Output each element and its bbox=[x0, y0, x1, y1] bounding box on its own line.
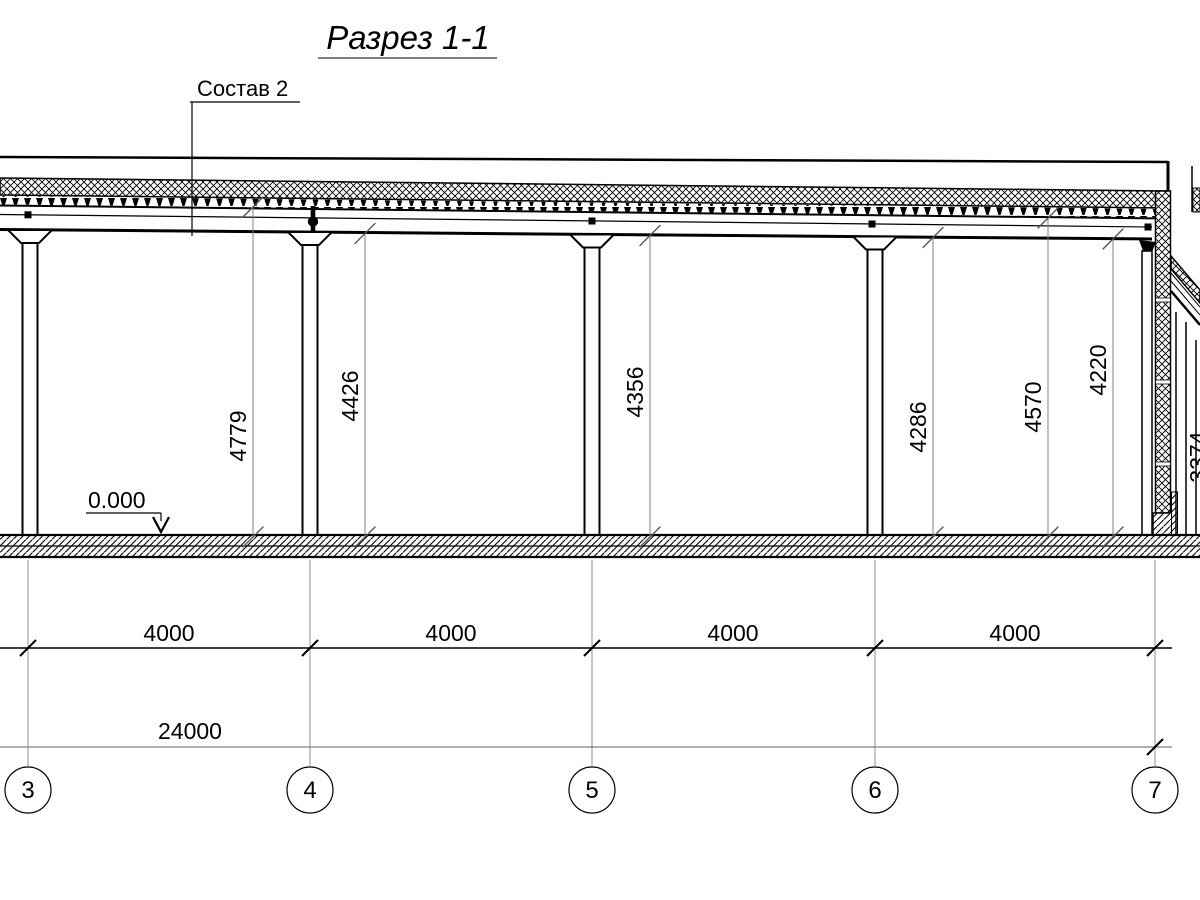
wall-joint bbox=[1156, 380, 1171, 384]
axis-bubble-7: 7 bbox=[1132, 767, 1178, 813]
beam-node bbox=[25, 211, 32, 218]
total-dimension-label: 24000 bbox=[158, 718, 222, 744]
wall-joint bbox=[1156, 298, 1171, 302]
wall-joint bbox=[1156, 462, 1171, 466]
callout-label: Состав 2 bbox=[197, 76, 288, 101]
bay-dimension-label: 4000 bbox=[707, 620, 758, 646]
axis-label: 6 bbox=[868, 777, 881, 804]
floor-slab bbox=[0, 535, 1200, 557]
axis-label: 3 bbox=[21, 777, 34, 804]
height-dimension-label: 4356 bbox=[622, 366, 648, 417]
axis-label: 5 bbox=[585, 777, 598, 804]
bay-dimension-label: 4000 bbox=[989, 620, 1040, 646]
height-dimension-label: 4220 bbox=[1085, 344, 1111, 395]
beam-node bbox=[1145, 224, 1152, 231]
annex-roof-fragment bbox=[1193, 188, 1200, 212]
section-drawing-sheet: 3374 0.000 Состав 2 4779 4426 bbox=[0, 0, 1200, 900]
wall-plinth bbox=[1153, 513, 1172, 537]
page-title: Разрез 1-1 bbox=[326, 19, 490, 56]
axis-label: 4 bbox=[303, 777, 316, 804]
axis-bubble-6: 6 bbox=[852, 767, 898, 813]
axis-label: 7 bbox=[1148, 777, 1161, 804]
beam-joint-node bbox=[308, 216, 318, 226]
floor-hatch-upper bbox=[0, 536, 1200, 546]
axis-bubble-3: 3 bbox=[5, 767, 51, 813]
axis-bubble-4: 4 bbox=[287, 767, 333, 813]
beam-node bbox=[869, 221, 876, 228]
height-dimension-label: 4286 bbox=[905, 401, 931, 452]
beam-node bbox=[589, 218, 596, 225]
bay-dimension-label: 4000 bbox=[425, 620, 476, 646]
axis-bubble-5: 5 bbox=[569, 767, 615, 813]
level-mark-value: 0.000 bbox=[88, 487, 146, 513]
floor-hatch-lower bbox=[0, 547, 1200, 557]
section-drawing: 3374 0.000 Состав 2 4779 4426 bbox=[0, 0, 1200, 900]
height-dimension-label: 4426 bbox=[337, 370, 363, 421]
bay-dimension-label: 4000 bbox=[143, 620, 194, 646]
drawing-title-block: Разрез 1-1 bbox=[318, 19, 497, 58]
annex-height-dimension-label: 3374 bbox=[1185, 431, 1200, 482]
height-dimension-label: 4779 bbox=[225, 410, 251, 461]
height-dimension-label: 4570 bbox=[1020, 381, 1046, 432]
